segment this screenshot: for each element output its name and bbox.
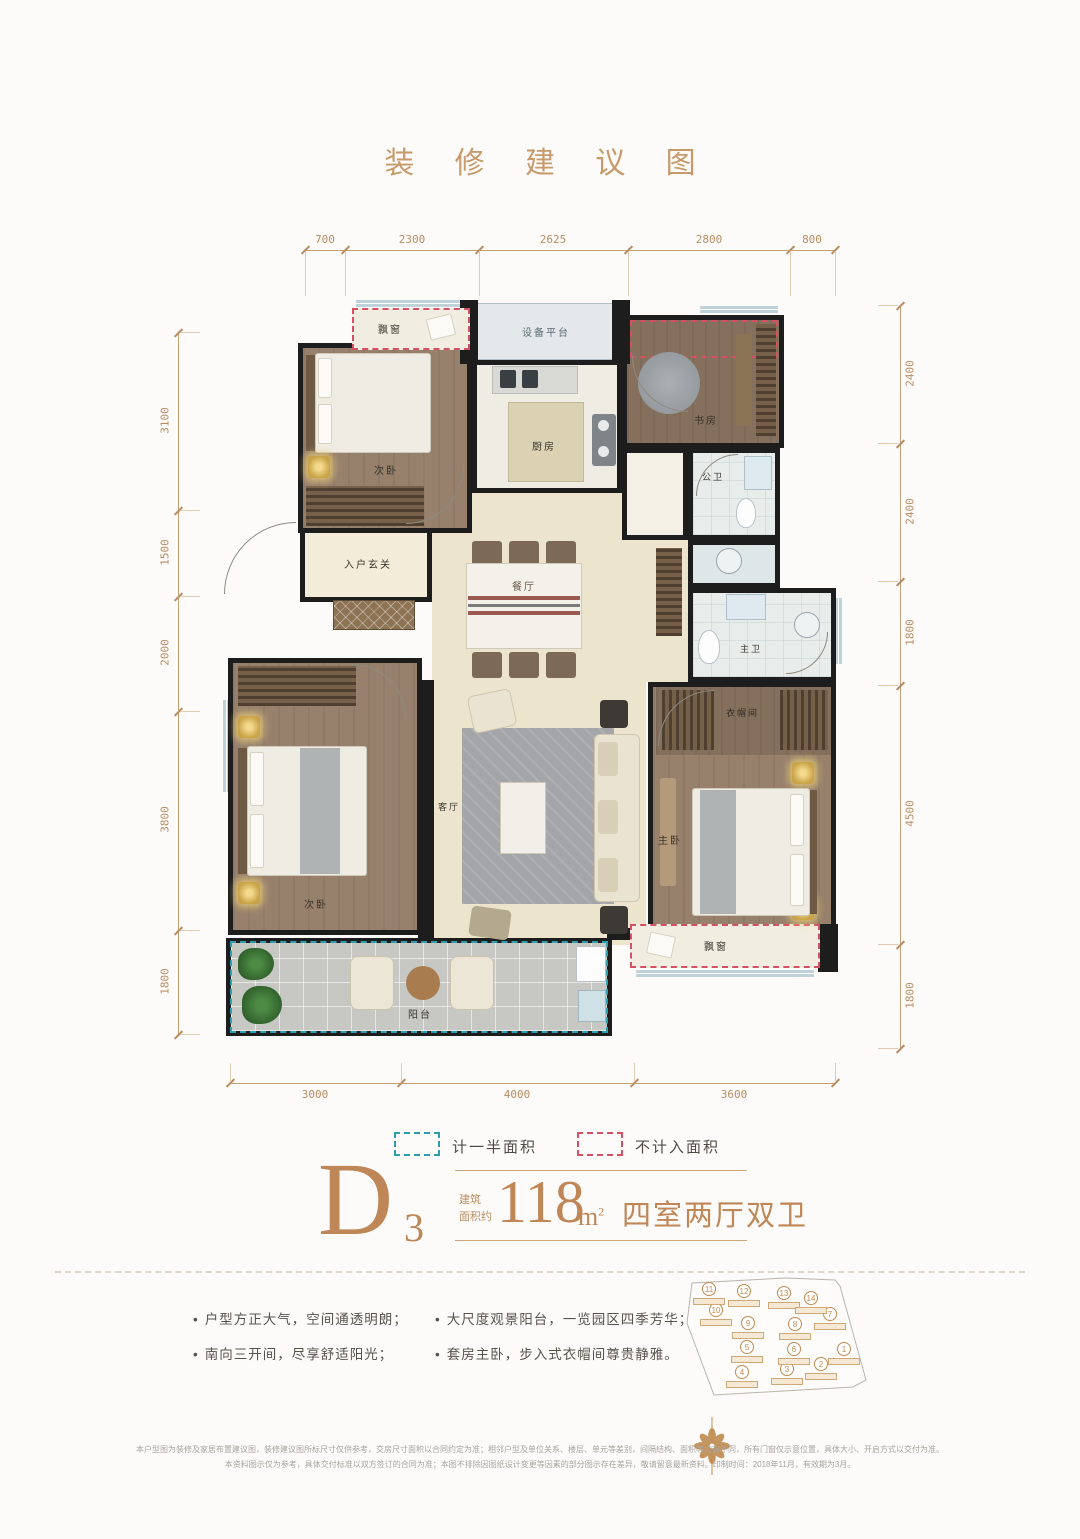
site-building-footprint-10 [700,1319,732,1326]
dim-ext-line [180,596,200,597]
unit-rule-bottom [455,1240,747,1241]
unit-number: 3 [404,1208,424,1248]
room-label-master-bedroom: 主卧 [658,832,682,847]
dim-ext-line [345,252,346,296]
legend-half-area-label: 计一半面积 [452,1136,537,1157]
pillow [318,358,332,398]
unit-area-prefix-line1: 建筑 [459,1192,492,1209]
dim-ext-line [878,443,898,444]
dim-ext-line [305,252,306,296]
window-study-top [700,306,778,314]
dim-bottom-3: 3600 [704,1088,764,1101]
kitchen-sink [522,370,538,388]
dim-ext-line [479,252,480,296]
blanket [300,748,340,874]
feature-item: •南向三开间，尽享舒适阳光； [193,1343,393,1363]
bed [315,353,431,453]
dim-ext-line [180,332,200,333]
site-building-footprint-1 [828,1358,860,1365]
balcony-table [406,966,440,1000]
room-label-dining: 餐厅 [512,578,536,593]
pillow [790,794,804,846]
nightstand-lamp [238,716,260,738]
dim-right-5: 1800 [904,971,917,1021]
unit-layout-text: 四室两厅双卫 [622,1192,808,1234]
bath-sink [744,456,772,490]
dim-ext-line [628,252,629,296]
site-building-footprint-7 [814,1323,846,1330]
study-desk [736,334,752,426]
site-building-footprint-4 [726,1381,758,1388]
closet-rack-right [780,690,828,750]
kitchen-sink [500,370,516,388]
shoe-cabinet [333,600,415,630]
room-label-study: 书房 [694,412,718,427]
balcony-sink [576,946,606,982]
wall-stub [418,680,434,938]
dim-line-top [305,250,835,251]
room-label-bedroom-top: 次卧 [374,462,398,477]
balcony-basin [578,990,606,1022]
legend-half-area-swatch [394,1132,440,1156]
toilet [736,498,756,528]
nightstand-lamp [238,882,260,904]
bullet-icon: • [435,1312,441,1327]
site-building-footprint-5 [731,1356,763,1363]
dining-runner [468,604,580,607]
room-label-closet: 衣帽间 [726,706,759,719]
unit-area-value: 118 [497,1172,585,1232]
dim-ext-line [835,1063,836,1081]
dim-right-4: 4500 [904,789,917,839]
room-label-equipment: 设备平台 [522,324,570,339]
dim-top-4: 2800 [679,233,739,246]
hall-cabinet [656,548,682,636]
dim-line-bottom [230,1083,835,1084]
site-building-footprint-12 [728,1300,760,1307]
site-building-number-4: 4 [735,1365,749,1379]
unit-area-prefix: 建筑 面积约 [459,1192,492,1225]
study-bookshelf [756,324,776,436]
door-arc-entry [224,522,296,594]
disclaimer-line1: 本户型图为装修及家居布置建议图，装修建议图所标尺寸仅供参考，交房尺寸面积以合同约… [90,1444,990,1455]
site-building-number-2: 2 [814,1357,828,1371]
room-label-bay-top: 飘窗 [378,321,402,336]
dim-bottom-2: 4000 [487,1088,547,1101]
unit-area-unit: m2 [578,1204,604,1230]
dim-left-4: 3800 [159,795,172,845]
dim-top-5: 800 [782,233,842,246]
ceiling-lamp [308,456,330,478]
site-building-number-6: 6 [787,1342,801,1356]
nightstand-lamp [792,762,814,784]
blanket [700,790,736,914]
window-bay-bottom [636,970,814,978]
pillow [250,752,264,806]
pillow [790,854,804,906]
room-label-master-bath: 主卫 [740,642,762,655]
page-title: 装 修 建 议 图 [0,138,1080,182]
site-building-footprint-3 [771,1378,803,1385]
coffee-table [500,782,546,854]
dim-top-1: 700 [295,233,355,246]
dim-right-1: 2400 [904,349,917,399]
room-label-bay-bottom: 飘窗 [704,938,728,953]
disclaimer-line2: 本资料图示仅为参考，具体交付标准以双方签订的合同为准；本图不排除因图纸设计变更等… [90,1459,990,1470]
dim-ext-line [180,711,200,712]
site-building-footprint-9 [732,1332,764,1339]
dim-ext-line [878,305,898,306]
dim-left-2: 1500 [159,528,172,578]
site-building-number-14: 14 [804,1291,818,1305]
site-building-number-11: 11 [702,1282,716,1296]
bullet-icon: • [193,1312,199,1327]
dim-ext-line [878,581,898,582]
dining-runner [468,596,580,600]
dining-chair [546,652,576,678]
site-building-number-13: 13 [777,1286,791,1300]
sofa-cushion [598,742,618,776]
stove-burner [598,420,609,431]
feature-item: •套房主卧，步入式衣帽间尊贵静雅。 [435,1343,679,1363]
balcony-chair [450,956,494,1010]
room-hall-cell [622,448,688,540]
floorplan-page: 装 修 建 议 图 700 2300 2625 2800 800 3100 15… [0,0,1080,1539]
unit-letter: D [318,1148,393,1252]
window-bay-top [356,300,468,308]
site-building-number-5: 5 [740,1340,754,1354]
dim-ext-line [878,685,898,686]
dining-chair [509,652,539,678]
dim-left-1: 3100 [159,396,172,446]
stove-burner [598,446,609,457]
dim-ext-line [790,252,791,296]
pillow [318,404,332,444]
room-label-living: 客厅 [438,800,460,813]
site-building-number-8: 8 [788,1317,802,1331]
site-building-footprint-6 [778,1358,810,1365]
feature-item: •大尺度观景阳台，一览园区四季芳华； [435,1308,693,1328]
dim-ext-line [180,930,200,931]
pillow [250,814,264,868]
balcony-chair [350,956,394,1010]
site-building-footprint-8 [779,1333,811,1340]
dining-chair [472,652,502,678]
dim-right-2: 2400 [904,487,917,537]
room-label-entry: 入户玄关 [344,556,392,571]
bullet-icon: • [435,1347,441,1362]
side-table [600,906,628,934]
dim-top-3: 2625 [523,233,583,246]
room-label-bedroom-left: 次卧 [304,896,328,911]
wardrobe [238,666,356,706]
site-building-number-10: 10 [709,1303,723,1317]
site-building-number-1: 1 [837,1342,851,1356]
dim-ext-line [401,1063,402,1081]
dining-runner [468,611,580,615]
sofa-cushion [598,858,618,892]
side-table [600,700,628,728]
dim-tick [174,1030,183,1039]
wall-stub [818,924,838,972]
dim-line-right [900,305,901,1048]
dim-bottom-1: 3000 [285,1088,345,1101]
dim-left-3: 2000 [159,628,172,678]
dim-ext-line [878,1048,898,1049]
bed-headboard [306,355,315,451]
washer [716,548,742,574]
room-label-kitchen: 厨房 [532,438,556,453]
legend-excluded-area-label: 不计入面积 [635,1136,720,1157]
dim-tick [896,1044,905,1053]
room-label-balcony: 阳台 [408,1006,432,1021]
room-label-guest-bath: 公卫 [702,470,724,483]
dim-ext-line [230,1063,231,1081]
dim-ext-line [180,510,200,511]
dim-ext-line [180,1034,200,1035]
site-building-footprint-14 [795,1307,827,1314]
site-building-footprint-11 [693,1298,725,1305]
unit-area-prefix-line2: 面积约 [459,1209,492,1226]
dim-right-3: 1800 [904,608,917,658]
site-building-number-9: 9 [741,1316,755,1330]
legend-excluded-area-swatch [577,1132,623,1156]
bed-headboard [238,748,247,874]
sofa-cushion [598,800,618,834]
bullet-icon: • [193,1347,199,1362]
bath-sink [726,594,766,620]
dim-left-5: 1800 [159,957,172,1007]
site-building-number-12: 12 [737,1284,751,1298]
dim-top-2: 2300 [382,233,442,246]
site-building-footprint-2 [805,1373,837,1380]
toilet [698,630,720,664]
wall-stub [612,300,630,364]
dim-ext-line [835,252,836,296]
feature-item: •户型方正大气，空间通透明朗； [193,1308,408,1328]
dim-ext-line [878,944,898,945]
ottoman [468,905,512,940]
dim-ext-line [634,1063,635,1081]
